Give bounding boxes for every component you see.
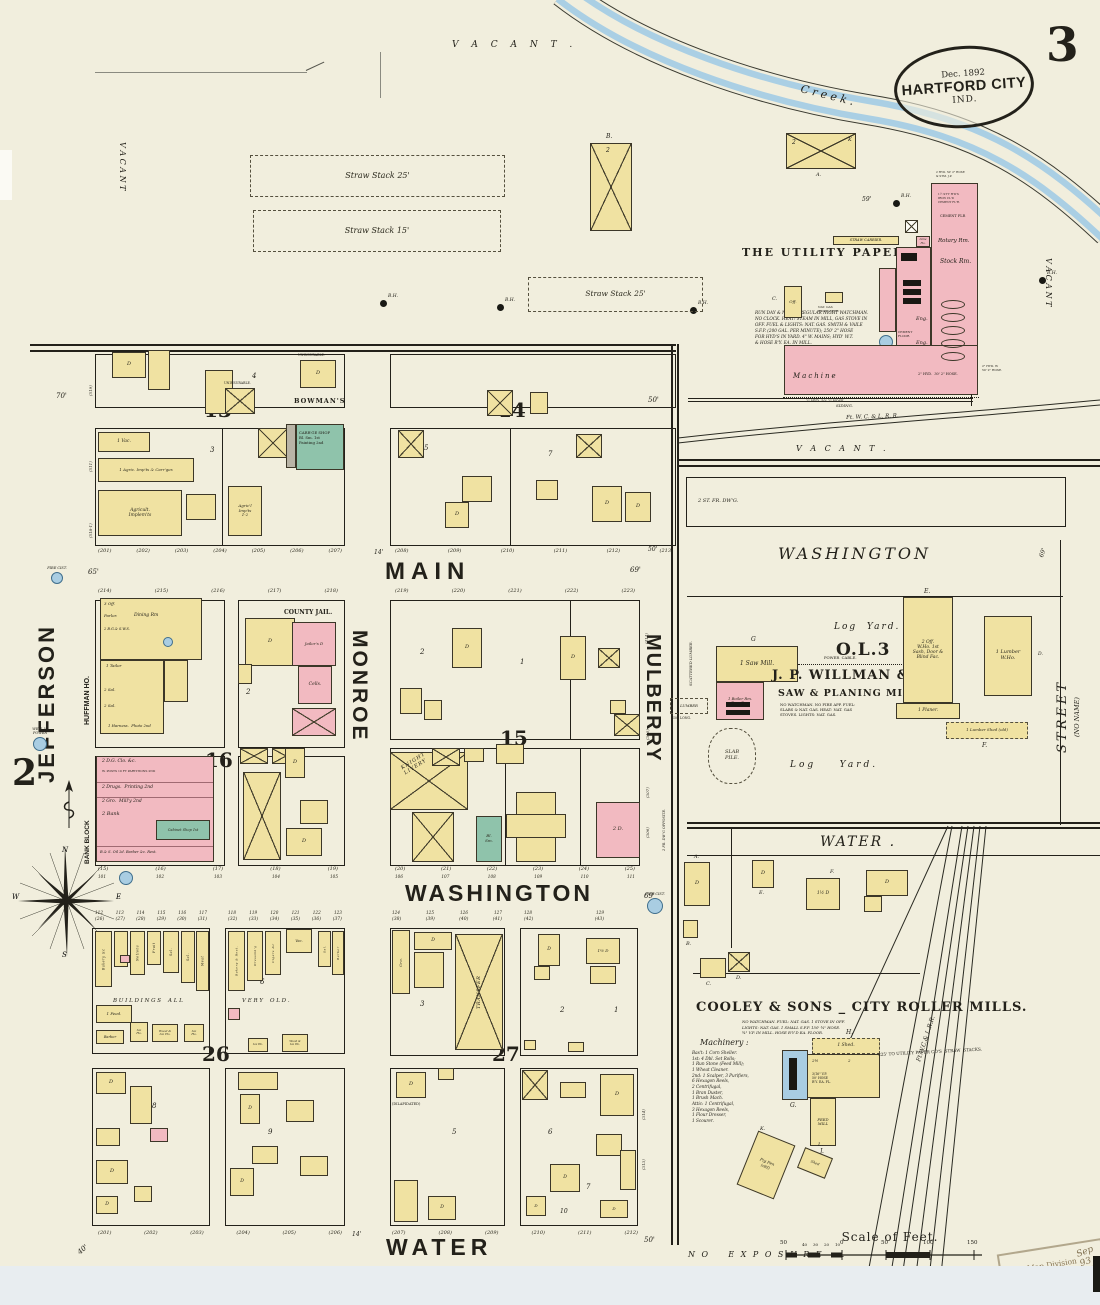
- no-exposure: N O E X P O S U R E .: [688, 1250, 846, 1259]
- slab-pile-label: SLAB PILE.: [709, 729, 755, 783]
- blk: [726, 710, 750, 715]
- xrect: [614, 714, 640, 736]
- rect-label: Agric'l Imp'ts 1-2: [229, 487, 261, 535]
- rect: [414, 952, 444, 988]
- rect: [286, 1100, 314, 1122]
- xrect: [432, 748, 460, 766]
- oval: [941, 352, 965, 361]
- vacant-label: V A C A N T .: [796, 444, 889, 453]
- rect: Bl. Sm.: [476, 816, 502, 862]
- rect: Off.: [784, 286, 802, 318]
- lot-number: (208): [395, 548, 408, 554]
- rect-label: Barber: [333, 932, 343, 974]
- street-main: MAIN: [385, 558, 470, 586]
- barn: [786, 133, 856, 169]
- vacant-label: V A C A N T .: [452, 40, 577, 50]
- street-water: WATER: [386, 1234, 492, 1261]
- lot-number: 113: [116, 910, 124, 915]
- lot-number: (203): [175, 548, 188, 554]
- bowmans-label: BOWMAN'S: [294, 397, 345, 405]
- xrect: [522, 1070, 548, 1100]
- lots: (38)(39)(40)(41): [392, 917, 502, 922]
- lbl: 3: [420, 1000, 424, 1008]
- vl: [580, 748, 581, 866]
- lbl: 5: [452, 1128, 456, 1136]
- rect-label: Cigars &c: [266, 932, 280, 974]
- lbl: 2: [420, 648, 424, 656]
- xrect: [243, 772, 281, 860]
- rect-label: D: [286, 749, 304, 777]
- lbl: G: [751, 636, 756, 643]
- lot-number: (210): [501, 548, 514, 554]
- lbl: 2 ST. FR. DW'G.: [698, 498, 738, 504]
- lot-number: (206): [290, 548, 303, 554]
- rect: Lime Ho.: [916, 236, 930, 247]
- rect: D: [96, 1196, 118, 1214]
- orect: [686, 477, 1066, 527]
- rect: Cells.: [298, 666, 332, 704]
- lot-number: (209): [485, 1230, 498, 1236]
- lot-number: (23): [533, 866, 543, 872]
- rect: [568, 1042, 584, 1052]
- lot-number: (16): [155, 866, 165, 872]
- bh-label: B.H.: [388, 294, 398, 299]
- rect-label: Notions: [131, 932, 144, 974]
- straw-stack-label: Straw Stack 15': [254, 211, 500, 251]
- rect: D: [96, 1160, 128, 1184]
- fire-cistern-label: FIRE CIST.: [645, 892, 665, 896]
- rect-label: 1 Vac.: [99, 433, 149, 451]
- lots: (26)(27)(28)(29)(30)(31): [95, 917, 207, 922]
- lbl: 50': [644, 1236, 655, 1244]
- log-yard: Log Yard.: [790, 760, 878, 770]
- vlbl: (310): [645, 700, 650, 740]
- lbl: 1½ ST'Y H'D'S IRON CL'D CEMENT FL'R.: [938, 192, 978, 204]
- lot-number: (39): [426, 917, 435, 922]
- lbl: B.: [686, 941, 691, 947]
- rect-label: Bl. Sm.: [477, 817, 501, 861]
- bh-label: B.H.: [1047, 271, 1057, 276]
- street-no-name: STREET: [1055, 598, 1070, 753]
- rect: 1½ D: [806, 878, 840, 910]
- rect: Barber: [96, 1030, 124, 1044]
- lot-number: (210): [532, 1230, 545, 1236]
- rect: Sal.: [163, 931, 179, 973]
- rect: Shed: [797, 1147, 833, 1179]
- rect: [524, 1040, 536, 1050]
- lbl: 6: [548, 1128, 552, 1136]
- lot-number: (212): [625, 1230, 638, 1236]
- rect: [560, 1082, 586, 1098]
- survey-tick: [306, 62, 325, 71]
- vl: [971, 394, 972, 406]
- lumber-warehouse-label: 1 Lumber W.Ho.: [985, 617, 1031, 695]
- lbl: K.: [760, 1126, 765, 1132]
- dash-label: 1 Shed.: [813, 1039, 879, 1053]
- lot-number: 111: [627, 874, 635, 879]
- rect: D: [428, 1196, 456, 1220]
- lot-number: 122: [313, 910, 321, 915]
- lumber-warehouse: 1 Lumber W.Ho.: [984, 616, 1032, 696]
- rect: Cabinet Shop 1st: [156, 820, 210, 840]
- lbl: H.: [846, 1029, 853, 1036]
- straw-stack-label: Straw Stack 25': [251, 156, 504, 196]
- lbl: C.: [706, 981, 711, 987]
- rect: [228, 1008, 240, 1020]
- rect-label: D: [113, 353, 145, 377]
- lbl: Parlor.: [104, 613, 117, 618]
- lbl: 50': [648, 546, 657, 553]
- lot-number: (31): [198, 917, 207, 922]
- ol3-label: O.L.3: [836, 640, 890, 660]
- lot-number: 129: [596, 910, 604, 915]
- rect-label: D: [246, 619, 294, 665]
- rect-label: Vac.: [287, 930, 311, 952]
- lbl: 14': [352, 1231, 361, 1238]
- bh-label: B.H.: [505, 298, 515, 303]
- lot-number: 101: [98, 874, 106, 879]
- rect-label: Barber: [97, 1031, 123, 1043]
- lot-number: (28): [136, 917, 145, 922]
- straw-stack: Straw Stack 15': [253, 210, 501, 252]
- rect-label: 1½ D: [587, 939, 619, 963]
- rect: D: [445, 502, 469, 528]
- fire-cistern-label: FIRE CIST.: [47, 566, 67, 570]
- lot-number: (15): [98, 866, 108, 872]
- rect: [620, 1150, 636, 1190]
- lot-number: 128: [524, 910, 532, 915]
- lot-number: (32): [228, 917, 237, 922]
- dot: [798, 664, 908, 665]
- xrect: [598, 648, 620, 668]
- lbl: 2 Gro. Mill'y 2nd: [102, 799, 142, 804]
- lbl: 2 HYD. 50' 2" HOSE & STM. J.P.: [936, 170, 980, 178]
- lots: (32)(33)(34)(35)(36)(37): [228, 917, 342, 922]
- rect: 1½ D: [586, 938, 620, 964]
- survey-line: [380, 52, 381, 98]
- rect-label: Ice Ho.: [249, 1039, 267, 1051]
- scan-mark: [1093, 1256, 1100, 1292]
- rect: Cigars &c: [265, 931, 281, 975]
- lot-number: (43): [595, 917, 604, 922]
- lot-number: (22): [487, 866, 497, 872]
- rect: [464, 748, 484, 762]
- lot-number: (211): [578, 1230, 591, 1236]
- lot-number: (202): [136, 548, 149, 554]
- vlbl: (307): [645, 758, 650, 798]
- lbl: Eng.: [916, 316, 928, 322]
- rect: D: [684, 862, 710, 906]
- lots: 101102103104105: [98, 874, 338, 879]
- rect: Vac.: [286, 929, 312, 953]
- rect-label: D: [601, 1075, 633, 1115]
- dbl: [687, 822, 1100, 829]
- lbl: 69': [1038, 547, 1048, 558]
- rect-label: Off.: [785, 287, 801, 317]
- lbl: 2 Drugs. Printing 2nd: [102, 785, 153, 790]
- feed-mill: FEED MILL: [810, 1098, 836, 1146]
- lot-number: (205): [252, 548, 265, 554]
- rect: D: [526, 1196, 546, 1216]
- lbl: B.& S. Oil 2d. Barber &c. Rest.: [100, 850, 157, 854]
- rect: [400, 688, 422, 714]
- lumber-shed-label: 1 Lumber Shed (old): [947, 723, 1027, 738]
- lbl: 3 Off.: [104, 601, 115, 606]
- lbl: 7: [586, 1183, 590, 1191]
- blk: [903, 289, 921, 295]
- lot-number: (25): [625, 866, 635, 872]
- lot-number: 127: [494, 910, 502, 915]
- rect: D: [600, 1074, 634, 1116]
- lbl: 7: [548, 450, 552, 458]
- rect-label: D: [97, 1197, 117, 1213]
- lbl: UNINSURABLE.: [224, 381, 251, 385]
- rect: [96, 1128, 120, 1146]
- rect-label: D: [429, 1197, 455, 1219]
- lot-number: (205): [282, 1230, 295, 1236]
- buildings-all-very-old: B U I L D I N G S A L L: [113, 998, 183, 1004]
- rect: [186, 494, 216, 520]
- railroad-label: Ft. W. C. & L. R. R.: [846, 413, 899, 421]
- orect: [225, 1068, 345, 1226]
- rect-label: Lime Ho.: [917, 237, 929, 246]
- hl: [688, 401, 973, 402]
- bowmans-hatch: [286, 424, 296, 468]
- rect: D: [300, 360, 336, 388]
- rect: [506, 814, 566, 838]
- rect: [424, 700, 442, 720]
- lbl: UNINSURABLE.: [298, 353, 325, 357]
- rect-label: Meat: [197, 932, 208, 990]
- xrect: [487, 390, 513, 416]
- lot-number: (27): [116, 917, 125, 922]
- rect: Dressmk'g: [247, 931, 263, 981]
- rect-label: Bakery &c: [96, 932, 111, 986]
- rect: D: [414, 932, 452, 950]
- street-washington-east: WASHINGTON: [778, 544, 931, 563]
- lbl: 4: [252, 372, 256, 380]
- rect: Sal.: [318, 931, 331, 967]
- lot-number: (213): [660, 548, 673, 554]
- rect-label: Gro.: [393, 931, 409, 993]
- lot-number: (30): [177, 917, 186, 922]
- lot-number: (17): [213, 866, 223, 872]
- lbl: 69': [630, 566, 641, 574]
- lots: (208)(209)(210)(211)(212)(213): [395, 548, 673, 554]
- lbl: 2: [792, 139, 796, 146]
- rect: D: [592, 486, 622, 522]
- lot-number: 125: [426, 910, 434, 915]
- lbl: D.: [1038, 652, 1043, 657]
- lot-number: 110: [581, 874, 589, 879]
- lot-number: (207): [329, 548, 342, 554]
- rect-label: Ice Ho.: [131, 1023, 147, 1041]
- lot-number: (38): [392, 917, 401, 922]
- straw-stack: Straw Stack 25': [528, 277, 703, 312]
- lot-number: (201): [98, 548, 111, 554]
- lot-number: (21): [441, 866, 451, 872]
- lbl: Dining Rm: [134, 613, 158, 618]
- hl: [688, 398, 973, 399]
- lbl: Stock Rm.: [940, 258, 971, 265]
- vl: [731, 828, 732, 948]
- lbl: 2: [848, 1058, 851, 1063]
- vlbl: (313): [641, 1130, 646, 1170]
- lbl: Machine: [793, 372, 838, 380]
- rect-label: D: [867, 871, 907, 895]
- rect: Ice Ho.: [184, 1024, 204, 1042]
- street-jefferson: JEFFERSON: [34, 608, 60, 783]
- rect-label: D: [446, 503, 468, 527]
- lot-number: (223): [622, 588, 635, 594]
- vlbl: (414): [644, 604, 649, 644]
- lot-number: (206): [329, 1230, 342, 1236]
- lot-number: 106: [395, 874, 403, 879]
- bh-label: B.H.: [901, 194, 911, 199]
- lot-number: 109: [534, 874, 542, 879]
- lbl: 8: [152, 1102, 156, 1110]
- rect: Bakery &c: [95, 931, 112, 987]
- rect: [150, 1128, 168, 1142]
- hl: [687, 596, 1063, 597]
- lbl: 2 Bank: [102, 811, 120, 817]
- rect-label: D: [231, 1169, 253, 1195]
- rect: D: [752, 860, 774, 888]
- oval: [941, 313, 965, 322]
- lbl: W. POSTS 10 FT PARTITIONS 2ND: [102, 769, 202, 773]
- lbl: 1: [614, 1006, 618, 1014]
- rect-label: D: [561, 637, 585, 679]
- rect-label: 2 D.: [597, 803, 639, 857]
- lbl: K: [848, 137, 852, 143]
- lot-number: (203): [190, 1230, 203, 1236]
- rect: 1 Feed.: [96, 1005, 132, 1023]
- dbl: [30, 344, 676, 352]
- lot-number: (222): [565, 588, 578, 594]
- lot-number: (217): [268, 588, 281, 594]
- rect: [252, 1146, 278, 1164]
- xrect: [240, 748, 268, 764]
- block-26: 26: [202, 1042, 230, 1066]
- lot-number: 120: [270, 910, 278, 915]
- rect: Agric'l Imp'ts 1-2: [228, 486, 262, 536]
- hl: [687, 855, 1100, 856]
- rect-label: Agricult. Implem'ts: [99, 491, 181, 535]
- rect: Meat: [196, 931, 209, 991]
- rect-label: Fruit: [148, 932, 160, 964]
- lbl: NAT. GAS REGULATOR.: [818, 305, 852, 313]
- lbl: 65': [88, 568, 99, 576]
- blk: [789, 1058, 797, 1090]
- rect: [700, 958, 726, 978]
- lbl: 70': [56, 392, 67, 400]
- lbl: 2½: [812, 1058, 818, 1063]
- map-features: 2 ST. FR. DW'G.MAINWASHINGTONWATERJEFFER…: [0, 0, 1100, 1305]
- bank-block-label: BANK BLOCK: [84, 764, 91, 864]
- rect-label: D: [397, 1073, 425, 1097]
- rect: [148, 350, 170, 390]
- lot-number: 114: [137, 910, 145, 915]
- lbl: Eng.: [916, 340, 928, 346]
- lot-number: (34): [270, 917, 279, 922]
- rect-label: Wood & Ice Ho.: [153, 1025, 177, 1041]
- lots: 106107108109110111: [395, 874, 635, 879]
- lbl: 10: [560, 1208, 568, 1215]
- lot-number: (216): [211, 588, 224, 594]
- rect: D: [286, 828, 322, 856]
- lot-number: (35): [291, 917, 300, 922]
- log-yard: Log Yard.: [834, 622, 900, 632]
- hl: [693, 973, 920, 974]
- rect: [683, 920, 698, 938]
- rect-label: D: [626, 493, 650, 521]
- lbl: 2 D.G. Clo. &c.: [102, 759, 136, 764]
- lot-number: 119: [249, 910, 257, 915]
- rect-label: Dressmk'g: [248, 932, 262, 980]
- oval: [941, 326, 965, 335]
- lot-number: (201): [98, 1230, 111, 1236]
- xrect: [258, 428, 288, 458]
- lot-number: 107: [441, 874, 449, 879]
- vl: [222, 428, 223, 546]
- lbl: CARR'GE SHOP Bl. Sm. 1st Painting 2nd: [299, 430, 343, 445]
- lbl: 50': [648, 396, 659, 404]
- rect: [536, 480, 558, 500]
- rect: D: [240, 1094, 260, 1124]
- planer: 1 Planer.: [896, 703, 960, 719]
- rect: D: [230, 1168, 254, 1196]
- rect: [394, 1180, 418, 1222]
- barn: [590, 143, 632, 231]
- xrect: [905, 220, 918, 233]
- lots: (15)(16)(17)(18)(19): [98, 866, 338, 872]
- fire-cistern: [119, 871, 133, 885]
- lbl: 2: [246, 688, 250, 696]
- xrect: [576, 434, 602, 458]
- hl: [97, 797, 213, 798]
- lbl: 2 B.G.& S.W.S.: [104, 627, 130, 631]
- rect-label: D: [415, 933, 451, 949]
- vlbl: 2 FR. DW'G OPPOSITE.: [662, 736, 666, 851]
- lbl: F.: [982, 742, 987, 749]
- lot-number: 118: [228, 910, 236, 915]
- rect: D: [550, 1164, 580, 1192]
- straw-carrier: STRAW CARRIER.: [833, 236, 899, 245]
- scan-edge-bottom: [0, 1266, 1100, 1305]
- lbl: 2: [606, 147, 610, 154]
- rect-label: D: [593, 487, 621, 521]
- street-no-name-sub: (NO NAME): [1073, 612, 1081, 737]
- survey-line: [95, 72, 307, 73]
- rect: Wood & Ice Ho.: [152, 1024, 178, 1042]
- slab-pile: SLAB PILE.: [708, 728, 756, 784]
- dash: LUMBER: [670, 698, 708, 714]
- well-with-power-label: WELL W POWER: [32, 727, 48, 735]
- orect: [390, 428, 676, 546]
- rect: [134, 1186, 152, 1202]
- rect: [864, 896, 882, 912]
- lot-number: 104: [272, 874, 280, 879]
- rect: [596, 1134, 622, 1156]
- rect: [164, 660, 188, 702]
- lot-number: 121: [292, 910, 300, 915]
- straw-stack-label: Straw Stack 25': [529, 278, 702, 311]
- lot-number: 105: [330, 874, 338, 879]
- lbl: 59': [862, 196, 871, 203]
- rect: [238, 664, 252, 684]
- lots: (214)(215)(216)(217)(218): [98, 588, 338, 594]
- lot-number: (42): [524, 917, 533, 922]
